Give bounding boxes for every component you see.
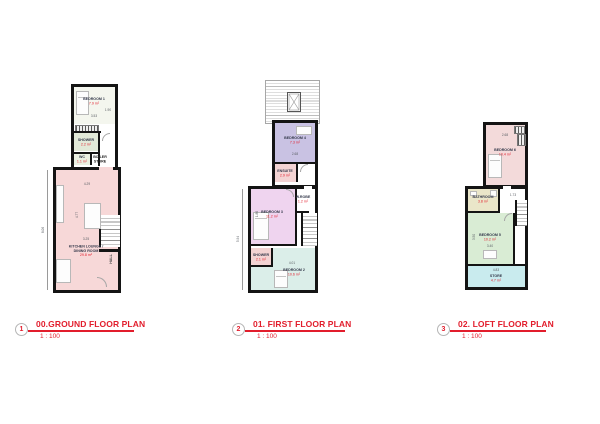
shelf-symbol [517,134,526,146]
first-wing-walls: BEDROOM 4 7.3 m² 2.68 ENSUITE 2.9 m² [272,120,318,188]
dining-table-symbol [84,203,101,229]
title-block-ground-floor: 1 00.GROUND FLOOR PLAN 1 : 100 [15,318,155,344]
dimension-label: 3.40 [487,244,493,248]
dimension-label: 3.50 [472,234,476,240]
wall-partition [498,189,500,211]
plan-scale: 1 : 100 [40,333,60,340]
room-label-store: STORE 4.7 m² [490,274,502,283]
room-label-boiler-store: BOILER STORE [93,155,107,164]
plan-title: 01. FIRST FLOOR PLAN [253,319,351,329]
room-label-bathroom: BATHROOM 3.8 m² [473,195,494,204]
wall-partition [251,244,297,246]
ground-body-walls: KITCHEN LOUNGE / DINING ROOM 29.8 m² HAL… [53,167,121,293]
dimension-label: 5.94 [236,236,240,242]
room-label-wardrobe: W.ROBE 1.2 m² [296,195,311,204]
dimension-label: 8.06 [41,227,45,233]
dimension-label: 3.25 [83,237,89,241]
landing-opening [503,186,511,190]
room-label-bedroom-3: BEDROOM 3 11.2 m² [261,210,283,219]
room-label-bedroom-5: BEDROOM 5 10.2 m² [479,233,501,242]
room-area: 10.2 m² [484,237,496,241]
room-area: 2.1 m² [256,257,266,261]
plan-title: 00.GROUND FLOOR PLAN [36,319,145,329]
pillow-symbol [490,156,500,161]
room-bedroom-2-ext [251,267,273,290]
plan-title: 02. LOFT FLOOR PLAN [458,319,554,329]
dimension-label: 1.86 [255,211,259,217]
dimension-label: 3.53 [91,114,97,118]
shelf-symbol [514,126,525,134]
stairs [99,215,120,247]
sofa-symbol [56,259,71,283]
room-area: 3.8 m² [478,199,488,203]
dimension-label: 4.83 [493,268,499,272]
loft-wing-walls: BEDROOM 6 10.4 m² 2.68 [483,122,528,188]
title-block-loft-floor: 3 02. LOFT FLOOR PLAN 1 : 100 [437,318,577,344]
stairs [515,200,527,226]
title-underline [450,330,546,332]
kitchen-counter-symbol [56,185,64,223]
drawing-sheet: BEDROOM 1 7.9 m² 3.53 1.90 SHOWER 2.2 m²… [0,0,600,424]
title-block-first-floor: 2 01. FIRST FLOOR PLAN 1 : 100 [232,318,372,344]
bed-symbol [488,154,502,178]
ground-wing-walls: BEDROOM 1 7.9 m² 3.53 1.90 SHOWER 2.2 m²… [71,84,118,170]
room-label-shower-gf: SHOWER 2.2 m² [78,138,94,147]
skylight-icon [287,92,301,112]
plan-scale: 1 : 100 [462,333,482,340]
hall-opening [99,167,113,171]
plan-number-badge: 3 [437,323,450,336]
room-area: 1.1 m² [77,159,87,163]
dimension-label: 1.73 [510,193,516,197]
dimension-label: 2.68 [292,152,298,156]
room-area: 29.8 m² [80,253,92,257]
dimension-label: 4.29 [84,182,90,186]
room-area: 2.9 m² [280,173,290,177]
room-area: 10.4 m² [499,152,511,156]
dimension-label: 1.90 [105,108,111,112]
first-body-walls: BEDROOM 3 11.2 m² 1.86 W.ROBE 1.2 m² SHO… [248,186,318,293]
room-area: 10.6 m² [288,272,300,276]
room-area: 11.2 m² [266,214,278,218]
wall-partition [296,164,298,182]
room-name: STORE [94,159,106,163]
wall-partition [90,154,92,165]
stairs [301,213,317,246]
dimension-label: 4.01 [289,261,295,265]
title-underline [28,330,134,332]
dimension-label: 4.77 [75,212,79,218]
room-label-ensuite: ENSUITE 2.9 m² [277,169,293,178]
dimension-line [242,189,243,290]
room-label-shower-ff: SHOWER 2.1 m² [253,253,269,262]
room-area: 4.7 m² [491,278,501,282]
room-area: 1.2 m² [298,199,308,203]
loft-body-walls: BATHROOM 3.8 m² 1.73 BEDROOM 5 10.2 m² 3… [465,186,528,290]
room-area: 7.9 m² [89,101,99,105]
room-label-bedroom-6: BEDROOM 6 10.4 m² [494,148,516,157]
room-label-bedroom-1: BEDROOM 1 7.9 m² [83,97,105,106]
bed-symbol [296,126,312,135]
wall-partition [513,213,515,264]
room-label-bedroom-2: BEDROOM 2 10.6 m² [283,268,305,277]
dimension-label: 2.68 [502,133,508,137]
room-label-wc: WC 1.1 m² [77,155,87,164]
hall-label: HALL [109,254,113,264]
plan-scale: 1 : 100 [257,333,277,340]
title-underline [245,330,345,332]
room-area: 2.2 m² [81,142,91,146]
room-label-kitchen-lounge: KITCHEN LOUNGE / DINING ROOM 29.8 m² [69,245,103,258]
plan-number-badge: 1 [15,323,28,336]
room-label-bedroom-4: BEDROOM 4 7.3 m² [284,136,306,145]
roof-hatch [265,80,320,124]
desk-symbol [483,250,497,259]
dimension-line [47,170,48,290]
plan-number-badge: 2 [232,323,245,336]
room-area: 7.3 m² [290,140,300,144]
